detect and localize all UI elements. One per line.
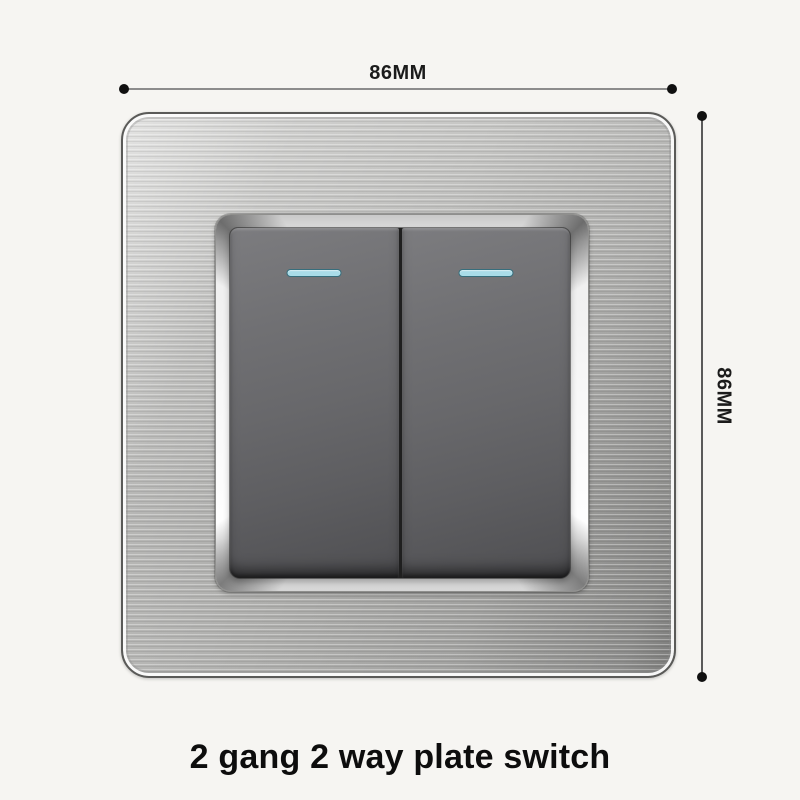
dimension-endpoint-dot <box>667 84 677 94</box>
product-image: 86MM 86MM 2 gang 2 way plate s <box>0 0 800 800</box>
product-caption: 2 gang 2 way plate switch <box>0 738 800 777</box>
dimension-endpoint-dot <box>119 84 129 94</box>
indicator-light <box>287 269 342 277</box>
height-dimension-line <box>701 116 703 677</box>
indicator-light <box>458 269 513 277</box>
dimension-endpoint-dot <box>697 111 707 121</box>
switch-plate <box>121 112 676 678</box>
width-dimension-line <box>124 88 672 90</box>
rocker-switch-2 <box>402 228 571 578</box>
switch-chrome-frame <box>215 214 589 592</box>
dimension-endpoint-dot <box>697 672 707 682</box>
width-dimension-label: 86MM <box>369 62 427 85</box>
rocker-group <box>230 228 570 578</box>
rocker-switch-1 <box>230 228 399 578</box>
height-dimension-label: 86MM <box>712 367 735 425</box>
